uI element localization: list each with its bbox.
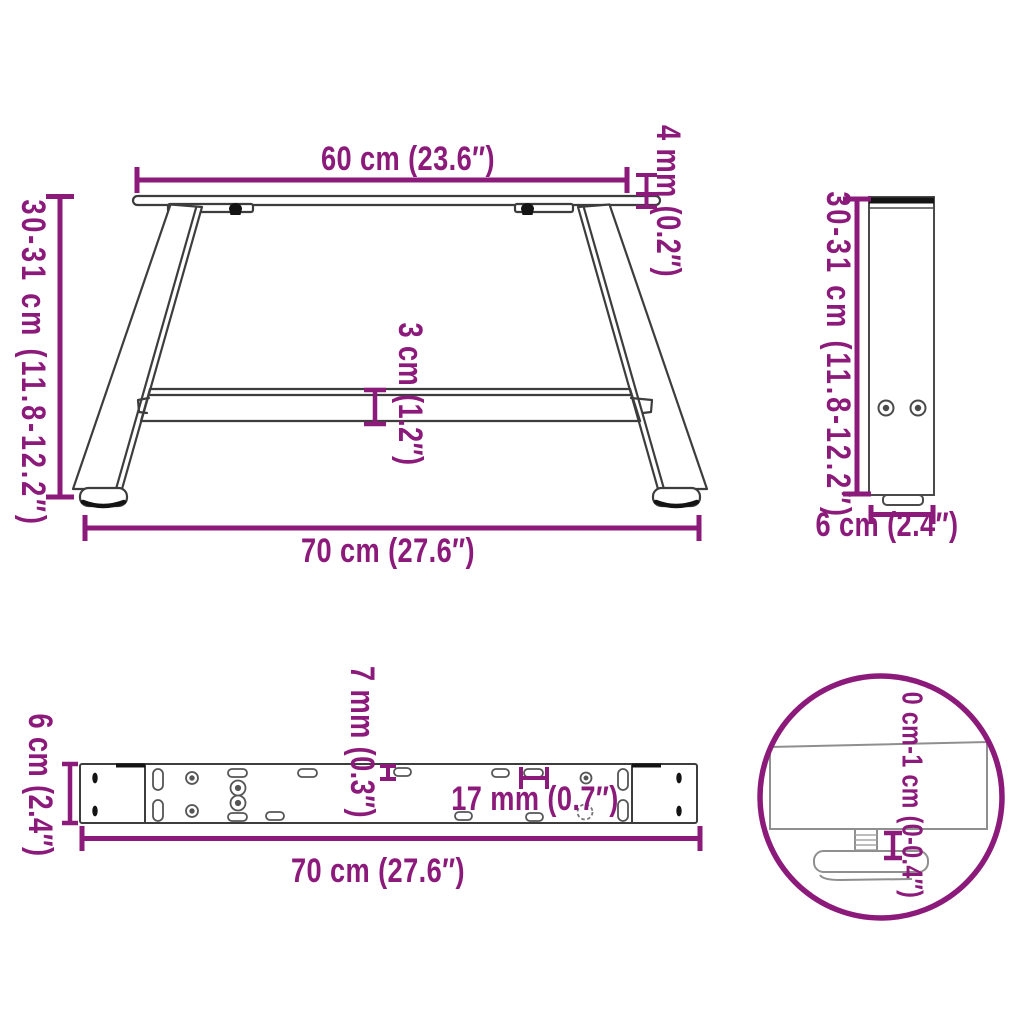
side-depth-label: 6 cm (2.4″) (816, 508, 959, 542)
front-crossbar-label: 3 cm (1.2″) (393, 323, 427, 466)
front-plate-thickness-label: 4 mm (0.2″) (651, 125, 685, 277)
screw-icon (229, 203, 242, 215)
dim-beam-length (82, 826, 700, 851)
diagram-canvas: 60 cm (23.6″) 4 mm (0.2″) 30-31 cm (11.8… (0, 0, 1024, 1024)
top-length-label: 70 cm (27.6″) (291, 854, 465, 888)
front-left-leg (73, 205, 202, 490)
screw-icon (521, 203, 534, 215)
front-view-drawing (73, 196, 707, 506)
top-hole-width-label: 17 mm (0.7″) (451, 782, 619, 816)
side-leg-body (869, 197, 934, 495)
top-slot-width-label: 7 mm (0.3″) (345, 666, 379, 818)
detail-leg-end (770, 742, 987, 829)
dim-beam-depth (62, 764, 78, 823)
side-leg-foot (883, 495, 923, 505)
front-height-label: 30-31 cm (11.8-12.2″) (16, 199, 50, 526)
detail-foot-range-label: 0 cm-1 cm (0-0.4″) (897, 692, 926, 899)
detail-view-drawing (760, 676, 1002, 918)
front-top-width-label: 60 cm (23.6″) (321, 142, 495, 176)
front-bottom-width-label: 70 cm (27.6″) (301, 534, 475, 568)
side-height-label: 30-31 cm (11.8-12.2″) (821, 191, 855, 518)
front-right-leg (578, 205, 707, 490)
top-depth-label: 6 cm (2.4″) (23, 714, 57, 857)
side-view-drawing (869, 197, 934, 505)
